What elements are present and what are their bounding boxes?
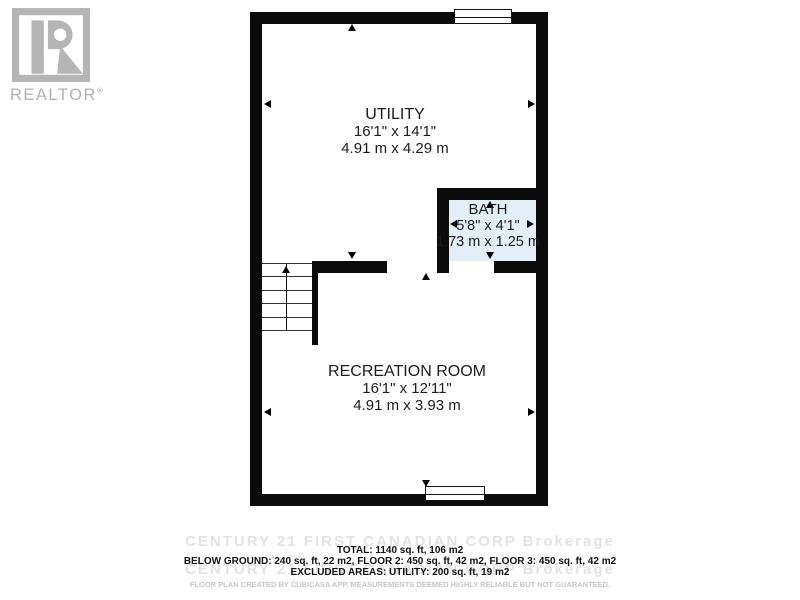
wall-stair-side [312,261,318,345]
room-name: UTILITY [295,106,495,123]
excluded-areas-text: EXCLUDED AREAS: UTILITY: 200 sq. ft, 19 … [0,567,800,578]
wall-bath-top [437,188,548,200]
room-dim-feet: 16'1" x 14'1" [295,123,495,140]
realtor-logo: REALTOR® [10,8,120,105]
dim-arrow-rec-right-icon [528,408,535,416]
room-label-utility: UTILITY 16'1" x 14'1" 4.91 m x 4.29 m [295,106,495,157]
dim-arrow-rec-top-icon [422,273,430,280]
room-name: BATH [433,202,543,218]
wall-exterior-bottom [250,494,548,506]
disclaimer-text: FLOOR PLAN CREATED BY CUBICASA APP. MEAS… [0,580,800,589]
room-label-bath: BATH 5'8" x 4'1" 1.73 m x 1.25 m [433,202,543,250]
stair-tread [262,277,312,290]
room-dim-meters: 1.73 m x 1.25 m [433,234,543,250]
stair-tread [262,304,312,317]
staircase [262,263,312,331]
stair-tread [262,318,312,331]
dim-arrow-utility-left-icon [264,100,271,108]
total-area-text: TOTAL: 1140 sq. ft, 106 m2 [0,545,800,556]
registered-trademark: ® [97,87,103,96]
room-dim-meters: 4.91 m x 4.29 m [295,140,495,157]
wall-room-divider [312,261,387,273]
stair-tread [262,291,312,304]
realtor-r-icon [12,8,90,82]
dim-arrow-utility-bottom-icon [348,252,356,259]
wall-bath-bottom [494,261,548,273]
stair-direction-line [286,264,287,331]
room-name: RECREATION ROOM [307,363,507,380]
room-label-recreation: RECREATION ROOM 16'1" x 12'11" 4.91 m x … [307,363,507,414]
dim-arrow-rec-bottom-icon [422,480,430,487]
room-dim-meters: 4.91 m x 3.93 m [307,397,507,414]
window-bottom [425,486,485,501]
realtor-wordmark: REALTOR® [10,86,120,105]
wall-exterior-left [250,12,262,506]
window-top [454,9,512,24]
stair-up-arrow-icon [282,266,290,273]
dim-arrow-bath-bottom-icon [486,252,494,259]
room-dim-feet: 16'1" x 12'11" [307,380,507,397]
wall-exterior-right [536,12,548,506]
room-dim-feet: 5'8" x 4'1" [433,218,543,234]
floor-breakdown-text: BELOW GROUND: 240 sq. ft, 22 m2, FLOOR 2… [0,556,800,567]
dim-arrow-utility-top-icon [348,24,356,31]
dim-arrow-utility-right-icon [528,100,535,108]
dim-arrow-rec-left-icon [264,408,271,416]
